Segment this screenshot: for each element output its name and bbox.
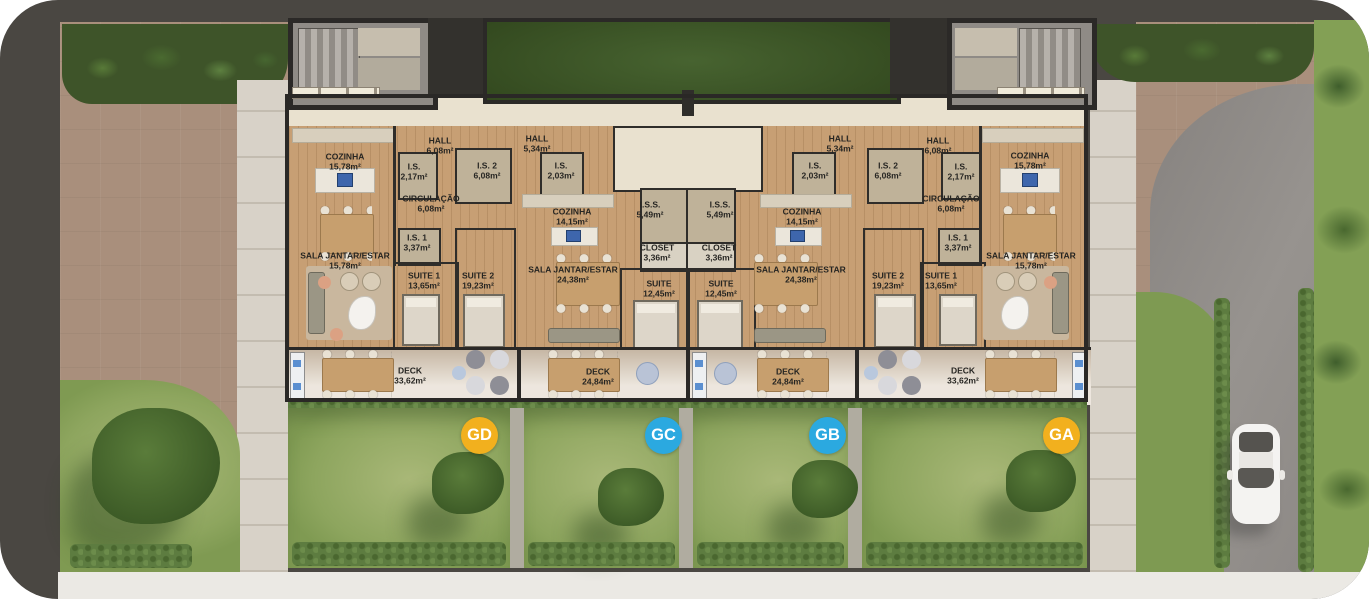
room-area: 6,08m² — [925, 146, 952, 156]
room-area: 14,15m² — [553, 217, 592, 227]
garden-ga-hedge — [866, 542, 1083, 566]
unit-badge-label: GD — [467, 426, 492, 445]
room-label-gc-sala: SALA JANTAR/ESTAR24,38m² — [528, 265, 618, 286]
room-label-gc-closet: CLOSET3,36m² — [640, 243, 674, 264]
ga-lounge-chair-3 — [878, 376, 897, 395]
room-area: 3,36m² — [640, 253, 674, 263]
stairs-left — [298, 28, 360, 92]
room-label-gc-deck: DECK24,84m² — [582, 367, 614, 388]
garden-divider-1 — [510, 408, 524, 568]
room-name: SUITE — [705, 279, 737, 289]
room-area: 5,34m² — [524, 144, 551, 154]
room-label-ga-deck: DECK33,62m² — [947, 366, 979, 387]
room-name: CLOSET — [702, 243, 736, 253]
left-walkway — [237, 80, 288, 572]
gd-kitchen-counter — [292, 128, 394, 143]
gd-deck-equipment-panel — [290, 352, 305, 400]
room-area: 6,08m² — [474, 171, 501, 181]
gc-deck-pouf — [636, 362, 659, 385]
gc-dining-chairs-bottom — [556, 304, 618, 313]
room-area: 6,08m² — [402, 204, 459, 214]
room-label-ga-cozinha: COZINHA15,78m² — [1011, 151, 1050, 172]
room-label-gc-hall: HALL5,34m² — [524, 134, 551, 155]
gd-lounge-chair-2 — [490, 350, 509, 369]
ramp-hedge-right — [1298, 288, 1314, 572]
room-area: 15,78m² — [1011, 161, 1050, 171]
right-planting-strip — [1090, 24, 1314, 82]
room-area: 3,36m² — [702, 253, 736, 263]
room-area: 33,62m² — [947, 376, 979, 386]
stair-landing-left-1 — [358, 28, 420, 56]
room-area: 5,49m² — [637, 210, 664, 220]
room-name: HALL — [925, 136, 952, 146]
room-name: CLOSET — [640, 243, 674, 253]
gd-armchair-2 — [362, 272, 381, 291]
gd-lounge-chair-3 — [466, 376, 485, 395]
right-green-border — [1314, 20, 1369, 572]
room-label-gd-is1: I.S. 13,37m² — [404, 233, 431, 254]
ga-lounge-chair-1 — [878, 350, 897, 369]
ga-lounge-chair-4 — [902, 376, 921, 395]
room-area: 6,08m² — [922, 204, 979, 214]
gc-cooktop — [566, 230, 581, 242]
room-name: SALA JANTAR/ESTAR — [986, 251, 1076, 261]
gd-pouf-1 — [318, 276, 331, 289]
ga-suite2-bed — [874, 294, 916, 348]
room-area: 5,34m² — [827, 144, 854, 154]
stair-landing-right-2 — [955, 58, 1017, 90]
room-name: I.S. — [948, 162, 975, 172]
room-label-ga-is: I.S.2,17m² — [948, 162, 975, 183]
room-area: 12,45m² — [705, 289, 737, 299]
unit-badge-label: GC — [651, 426, 676, 445]
room-area: 15,78m² — [326, 162, 365, 172]
gd-pouf-2 — [330, 328, 343, 341]
gb-suite-bed — [697, 300, 743, 349]
gd-lounge-chair-4 — [490, 376, 509, 395]
room-label-gd-deck: DECK33,62m² — [394, 366, 426, 387]
room-name: SUITE 2 — [462, 271, 494, 281]
room-area: 13,65m² — [925, 281, 957, 291]
room-name: CIRCULAÇÃO — [402, 194, 459, 204]
room-area: 6,08m² — [875, 171, 902, 181]
room-name: SUITE — [643, 279, 675, 289]
ga-suite1-bed — [939, 294, 977, 346]
ga-dining-table — [1003, 214, 1057, 254]
room-area: 6,08m² — [427, 146, 454, 156]
room-label-ga-suite2: SUITE 219,23m² — [872, 271, 904, 292]
room-area: 5,49m² — [707, 210, 734, 220]
car-mirror-left — [1227, 470, 1233, 480]
room-label-ga-hall: HALL6,08m² — [925, 136, 952, 157]
room-label-gc-is: I.S.2,03m² — [548, 161, 575, 182]
unit-badge-ga[interactable]: GA — [1043, 417, 1080, 454]
room-label-gd-cozinha: COZINHA15,78m² — [326, 152, 365, 173]
service-block-right — [890, 18, 947, 98]
gb-sofa — [754, 328, 826, 343]
unit-badge-gd[interactable]: GD — [461, 417, 498, 454]
room-label-ga-circulacao: CIRCULAÇÃO6,08m² — [922, 194, 979, 215]
ga-kitchen-counter — [982, 128, 1084, 143]
room-area: 24,84m² — [772, 377, 804, 387]
room-label-gb-deck: DECK24,84m² — [772, 367, 804, 388]
gd-partition-wall — [393, 126, 396, 266]
room-name: SUITE 1 — [408, 271, 440, 281]
room-name: I.S. — [548, 161, 575, 171]
room-name: HALL — [827, 134, 854, 144]
room-name: SALA JANTAR/ESTAR — [528, 265, 618, 275]
unit-badge-label: GB — [815, 426, 840, 445]
lobby-cabinets-right — [997, 87, 1085, 99]
service-block-left — [428, 18, 485, 98]
site-boundary: COZINHA15,78m² HALL6,08m² I.S.2,17m² I.S… — [0, 0, 1369, 599]
room-label-gd-circulacao: CIRCULAÇÃO6,08m² — [402, 194, 459, 215]
stair-landing-left-2 — [358, 58, 420, 90]
room-name: I.S. 1 — [945, 233, 972, 243]
room-area: 19,23m² — [872, 281, 904, 291]
room-area: 14,15m² — [783, 217, 822, 227]
gd-cooktop — [337, 173, 353, 187]
room-name: SALA JANTAR/ESTAR — [300, 251, 390, 261]
room-area: 2,17m² — [948, 172, 975, 182]
unit-badge-gb[interactable]: GB — [809, 417, 846, 454]
stair-landing-right-1 — [955, 28, 1017, 56]
room-name: DECK — [582, 367, 614, 377]
room-name: I.S.S. — [707, 200, 734, 210]
garden-gd-hedge — [292, 542, 506, 566]
gd-deck-table — [322, 358, 394, 392]
gb-cooktop — [790, 230, 805, 242]
room-area: 13,65m² — [408, 281, 440, 291]
room-area: 24,84m² — [582, 377, 614, 387]
center-corridor — [613, 126, 763, 192]
room-label-gc-iss: I.S.S.5,49m² — [637, 200, 664, 221]
room-name: COZINHA — [326, 152, 365, 162]
room-name: SUITE 2 — [872, 271, 904, 281]
room-area: 2,17m² — [401, 172, 428, 182]
room-label-gc-suite: SUITE12,45m² — [643, 279, 675, 300]
garden-gb-hedge — [697, 542, 844, 566]
room-name: HALL — [524, 134, 551, 144]
room-name: DECK — [772, 367, 804, 377]
room-name: I.S. 2 — [474, 161, 501, 171]
room-name: I.S.S. — [637, 200, 664, 210]
gd-armchair-1 — [340, 272, 359, 291]
ga-armchair-2 — [1018, 272, 1037, 291]
room-area: 24,38m² — [756, 275, 846, 285]
room-label-gd-is: I.S.2,17m² — [401, 162, 428, 183]
room-area: 2,03m² — [548, 171, 575, 181]
room-area: 15,78m² — [300, 261, 390, 271]
car-roof — [1239, 452, 1273, 468]
gb-deck-pouf — [714, 362, 737, 385]
room-label-gd-suite1: SUITE 113,65m² — [408, 271, 440, 292]
room-label-gb-cozinha: COZINHA14,15m² — [783, 207, 822, 228]
room-label-gb-sala: SALA JANTAR/ESTAR24,38m² — [756, 265, 846, 286]
room-name: COZINHA — [553, 207, 592, 217]
gb-deck-equipment-panel — [692, 352, 707, 400]
sidewalk — [58, 572, 1369, 599]
ga-pouf-1 — [1044, 276, 1057, 289]
site-plan-canvas: COZINHA15,78m² HALL6,08m² I.S.2,17m² I.S… — [0, 0, 1369, 599]
car — [1232, 424, 1280, 524]
ga-deck-table — [985, 358, 1057, 392]
car-mirror-right — [1279, 470, 1285, 480]
ga-cooktop — [1022, 173, 1038, 187]
gc-sofa — [548, 328, 620, 343]
room-area: 3,37m² — [404, 243, 431, 253]
room-name: I.S. — [802, 161, 829, 171]
room-name: I.S. 2 — [875, 161, 902, 171]
ga-armchair-1 — [996, 272, 1015, 291]
ga-deck-equipment-panel — [1072, 352, 1087, 400]
gd-side-table — [452, 366, 466, 380]
room-label-gd-suite2: SUITE 219,23m² — [462, 271, 494, 292]
room-name: COZINHA — [783, 207, 822, 217]
ga-side-table — [864, 366, 878, 380]
room-label-gb-closet: CLOSET3,36m² — [702, 243, 736, 264]
gb-dining-chairs-bottom — [754, 304, 816, 313]
right-walkway — [1090, 80, 1136, 572]
gd-suite1-bed — [402, 294, 440, 346]
room-area: 24,38m² — [528, 275, 618, 285]
gd-dining-table — [320, 214, 374, 254]
room-name: DECK — [394, 366, 426, 376]
stairs-right — [1019, 28, 1081, 92]
car-rear-window — [1239, 432, 1273, 452]
room-label-ga-is2: I.S. 26,08m² — [875, 161, 902, 182]
right-lawn-patch — [1136, 292, 1224, 572]
lobby-cabinets-left — [292, 87, 380, 99]
room-label-gd-sala: SALA JANTAR/ESTAR15,78m² — [300, 251, 390, 272]
gc-suite-bed — [633, 300, 679, 349]
room-label-gb-iss: I.S.S.5,49m² — [707, 200, 734, 221]
room-label-ga-suite1: SUITE 113,65m² — [925, 271, 957, 292]
garden-gc-hedge — [528, 542, 675, 566]
room-name: SALA JANTAR/ESTAR — [756, 265, 846, 275]
room-name: HALL — [427, 136, 454, 146]
room-area: 12,45m² — [643, 289, 675, 299]
room-label-gb-hall: HALL5,34m² — [827, 134, 854, 155]
unit-badge-label: GA — [1049, 426, 1074, 445]
room-label-gc-cozinha: COZINHA14,15m² — [553, 207, 592, 228]
room-name: I.S. 1 — [404, 233, 431, 243]
unit-badge-gc[interactable]: GC — [645, 417, 682, 454]
room-label-ga-sala: SALA JANTAR/ESTAR15,78m² — [986, 251, 1076, 272]
room-label-gb-is: I.S.2,03m² — [802, 161, 829, 182]
car-windshield — [1238, 468, 1274, 488]
room-area: 15,78m² — [986, 261, 1076, 271]
room-area: 19,23m² — [462, 281, 494, 291]
room-name: SUITE 1 — [925, 271, 957, 281]
room-label-ga-is1: I.S. 13,37m² — [945, 233, 972, 254]
left-hedge-row — [70, 544, 192, 568]
room-name: CIRCULAÇÃO — [922, 194, 979, 204]
room-name: DECK — [947, 366, 979, 376]
room-area: 3,37m² — [945, 243, 972, 253]
room-area: 33,62m² — [394, 376, 426, 386]
gd-lounge-chair-1 — [466, 350, 485, 369]
room-name: I.S. — [401, 162, 428, 172]
entry-door-stub — [682, 90, 694, 116]
room-area: 2,03m² — [802, 171, 829, 181]
room-name: COZINHA — [1011, 151, 1050, 161]
ramp-hedge-left — [1214, 298, 1230, 568]
ga-lounge-chair-2 — [902, 350, 921, 369]
room-label-gd-hall: HALL6,08m² — [427, 136, 454, 157]
gd-suite2-bed — [463, 294, 505, 348]
room-label-gd-is2: I.S. 26,08m² — [474, 161, 501, 182]
room-label-gb-suite: SUITE12,45m² — [705, 279, 737, 300]
